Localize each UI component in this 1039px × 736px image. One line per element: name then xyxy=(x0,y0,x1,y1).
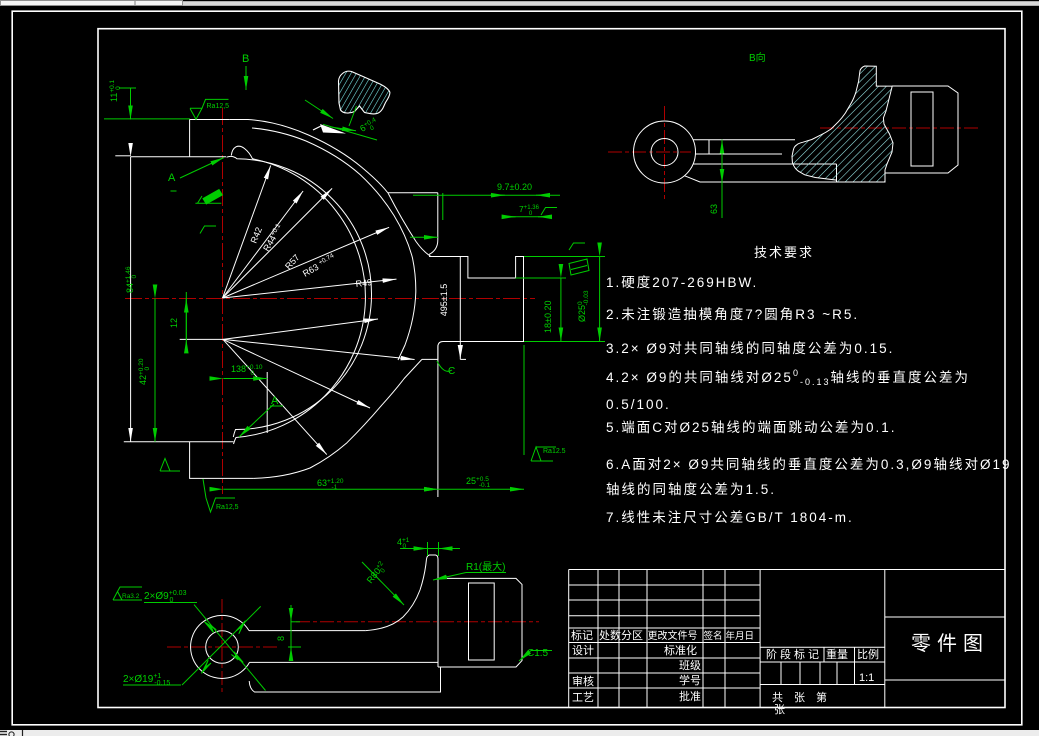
svg-text:R1(最大): R1(最大) xyxy=(466,560,505,573)
svg-text:1.硬度207-269HBW.: 1.硬度207-269HBW. xyxy=(606,275,758,290)
svg-text:5.端面C对Ø25轴线的端面跳动公差为0.1.: 5.端面C对Ø25轴线的端面跳动公差为0.1. xyxy=(606,420,897,435)
svg-text:批准: 批准 xyxy=(679,689,701,703)
svg-text:轴线的同轴度公差为1.5.: 轴线的同轴度公差为1.5. xyxy=(606,482,776,497)
svg-text:班级: 班级 xyxy=(679,659,701,672)
svg-text:7.线性未注尺寸公差GB/T 1804-m.: 7.线性未注尺寸公差GB/T 1804-m. xyxy=(606,510,854,525)
svg-text:设计: 设计 xyxy=(572,644,594,657)
svg-text:工艺: 工艺 xyxy=(572,691,594,704)
svg-text:Ra12,5: Ra12,5 xyxy=(207,103,230,110)
svg-text:标记: 标记 xyxy=(571,628,593,642)
svg-text:A: A xyxy=(271,395,279,407)
svg-text:9.7±0.20: 9.7±0.20 xyxy=(497,182,532,192)
svg-text:更改文件号: 更改文件号 xyxy=(648,629,698,642)
svg-text:标准化: 标准化 xyxy=(664,643,697,657)
svg-text:6.A面对2× Ø9共同轴线的垂直度公差为0.3,Ø9轴线对: 6.A面对2× Ø9共同轴线的垂直度公差为0.3,Ø9轴线对Ø19 xyxy=(606,457,1011,472)
svg-text:学号: 学号 xyxy=(679,673,701,687)
svg-text:审核: 审核 xyxy=(572,674,594,688)
svg-text:0.5/100.: 0.5/100. xyxy=(606,397,671,412)
svg-text:3.2× Ø9对共同轴线的同轴度公差为0.15.: 3.2× Ø9对共同轴线的同轴度公差为0.15. xyxy=(606,341,894,356)
svg-text:零件图: 零件图 xyxy=(911,632,989,655)
svg-text:C1.5: C1.5 xyxy=(527,648,549,659)
svg-text:共张第: 共张第 xyxy=(772,690,838,704)
svg-text:处数: 处数 xyxy=(599,629,621,642)
svg-text:Ra3.2: Ra3.2 xyxy=(122,593,140,600)
svg-text:R49: R49 xyxy=(355,277,373,289)
svg-text:8: 8 xyxy=(276,636,286,641)
svg-text:C: C xyxy=(448,366,455,377)
svg-text:Ra12,5: Ra12,5 xyxy=(216,504,239,511)
svg-text:2.未注锻造抽模角度7?圆角R3 ~R5.: 2.未注锻造抽模角度7?圆角R3 ~R5. xyxy=(606,307,859,322)
svg-text:比例: 比例 xyxy=(857,647,879,661)
svg-text:18±0.20: 18±0.20 xyxy=(543,301,553,333)
svg-text:张: 张 xyxy=(774,703,785,716)
svg-text:年月日: 年月日 xyxy=(726,630,755,642)
svg-text:A: A xyxy=(168,172,176,184)
svg-text:495±1.5: 495±1.5 xyxy=(439,284,449,316)
svg-text:重量: 重量 xyxy=(826,647,848,661)
svg-text:签名: 签名 xyxy=(704,630,723,642)
svg-text:63: 63 xyxy=(709,204,719,214)
svg-text:阶段标记: 阶段标记 xyxy=(766,647,822,661)
svg-text:技术要求: 技术要求 xyxy=(754,245,814,260)
svg-text:1:1: 1:1 xyxy=(859,672,874,684)
svg-text:B: B xyxy=(242,53,249,65)
svg-text:B向: B向 xyxy=(749,51,766,64)
svg-text:分区: 分区 xyxy=(621,629,643,642)
svg-text:4.2× Ø9的共同轴线对Ø250-0.13轴线的垂直度公差: 4.2× Ø9的共同轴线对Ø250-0.13轴线的垂直度公差为 xyxy=(606,368,970,387)
svg-text:Ra12.5: Ra12.5 xyxy=(543,448,566,455)
svg-text:12: 12 xyxy=(169,318,179,328)
